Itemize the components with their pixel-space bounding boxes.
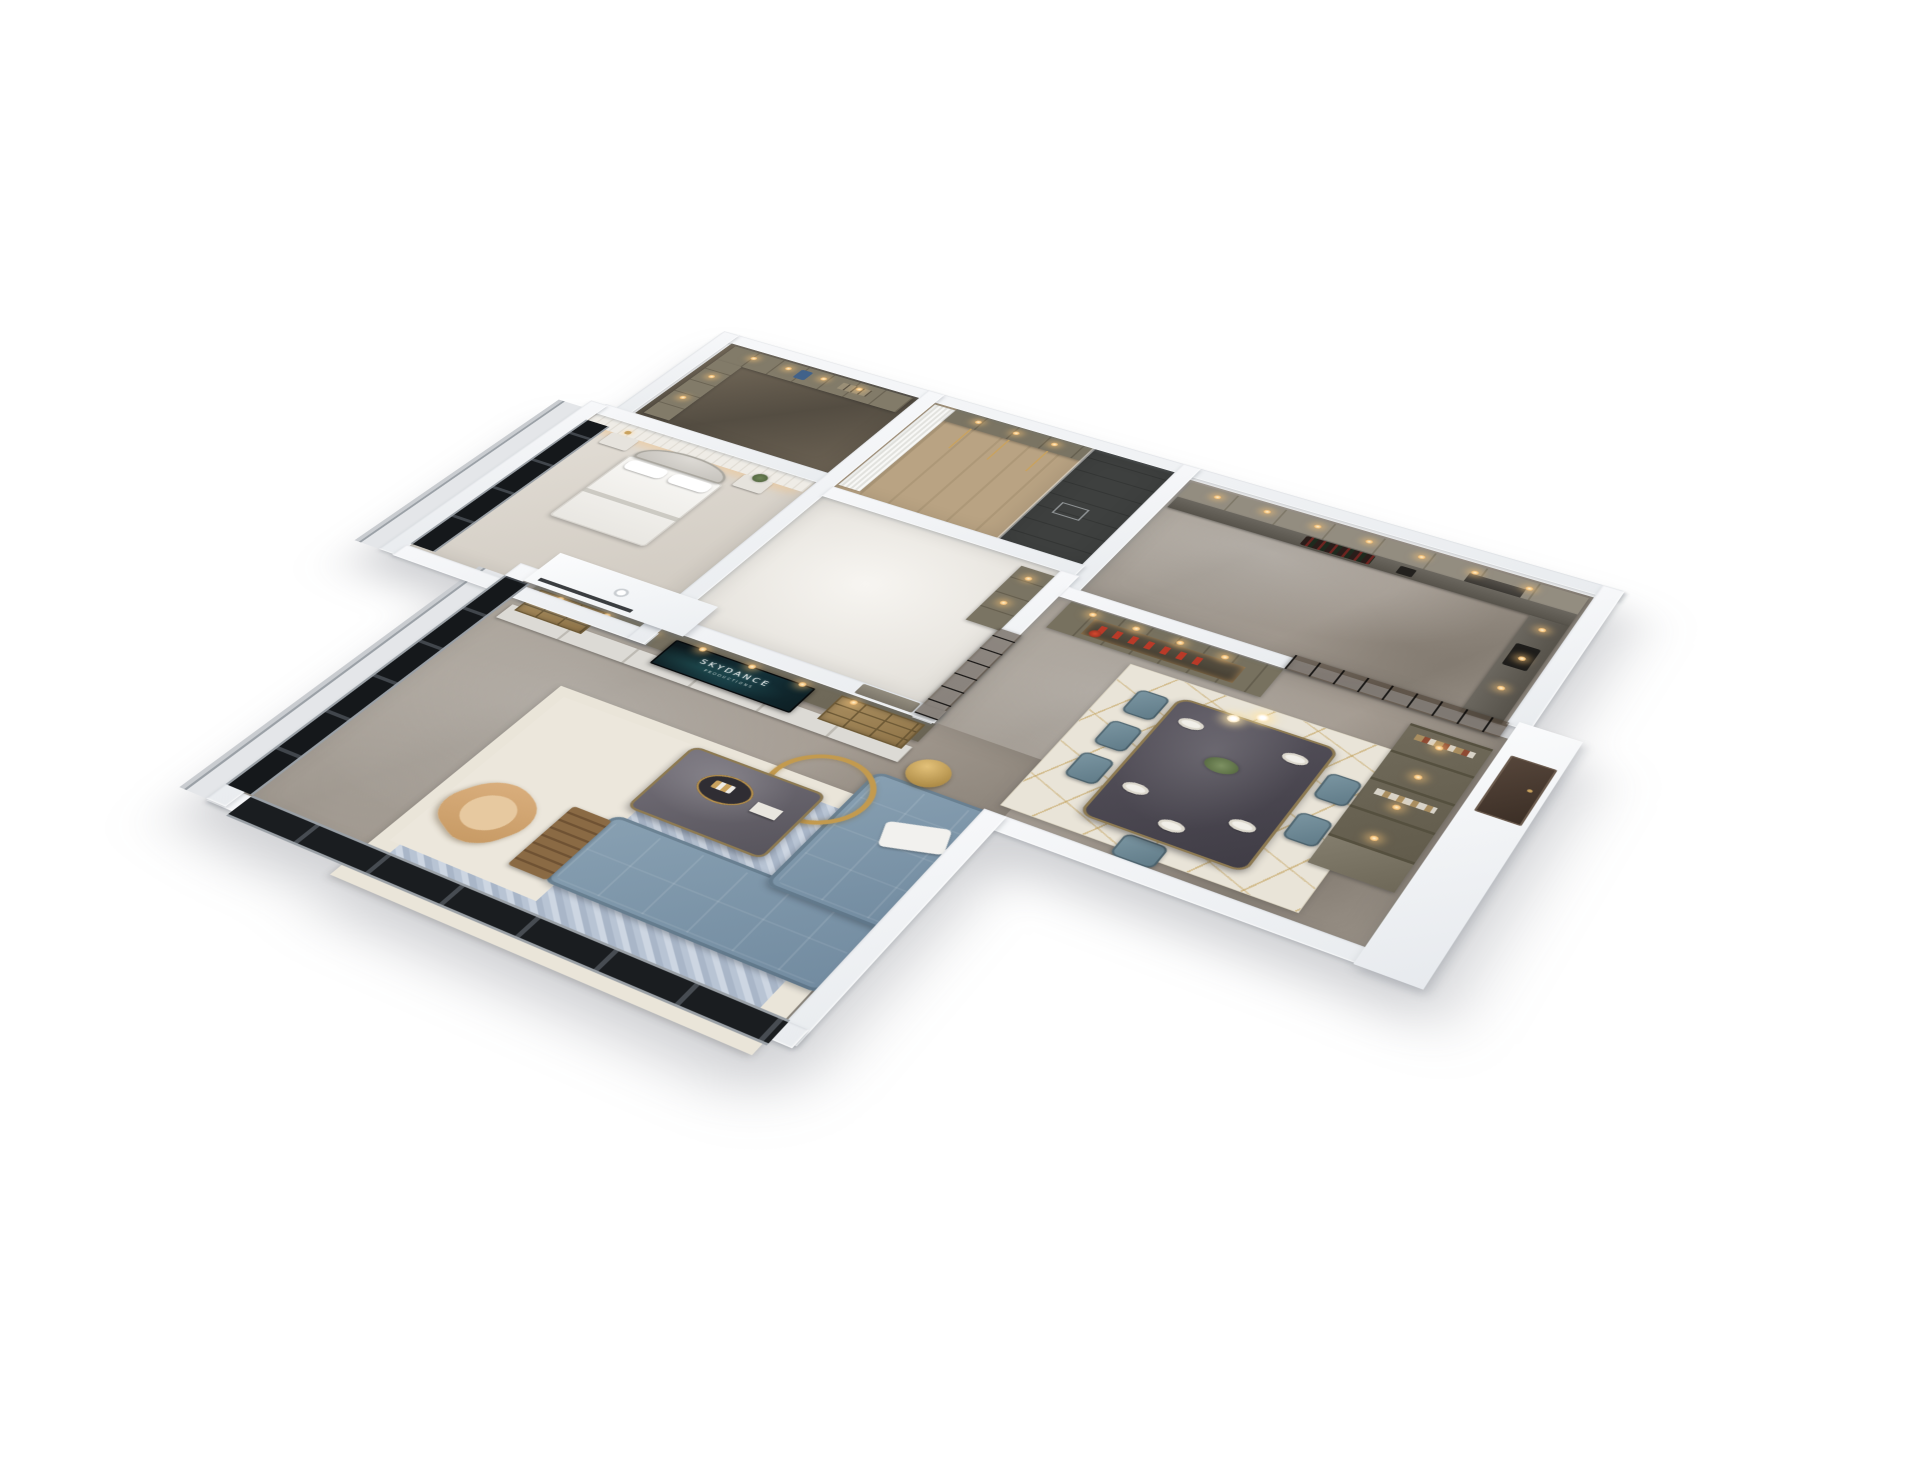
- render-canvas: SKYDANCE PRODUCTIONS: [0, 0, 1920, 1484]
- apartment-3d-plan: SKYDANCE PRODUCTIONS: [108, 335, 1617, 1218]
